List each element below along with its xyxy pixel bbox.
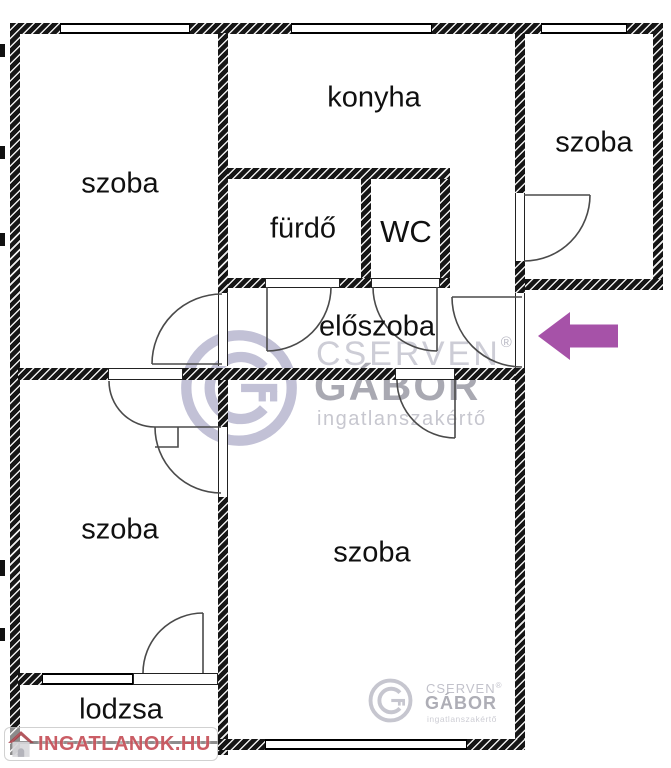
door-opening bbox=[218, 427, 228, 497]
agency-logo-icon bbox=[177, 326, 301, 450]
wall-segment bbox=[455, 368, 515, 380]
agency-name-bottom-small: GÁBOR bbox=[425, 693, 497, 714]
edge-mark bbox=[0, 560, 5, 576]
room-label-hallway: előszoba bbox=[319, 311, 435, 344]
room-label-living: szoba bbox=[333, 537, 410, 570]
wall-segment bbox=[218, 33, 228, 293]
edge-mark bbox=[0, 233, 5, 246]
wall-segment bbox=[10, 23, 20, 755]
wall-segment bbox=[340, 278, 371, 288]
room-label-loggia: lodzsa bbox=[79, 694, 163, 727]
door-opening bbox=[395, 368, 455, 380]
wall-segment bbox=[10, 23, 60, 34]
agency-logo-icon-small bbox=[367, 677, 414, 724]
wall-segment bbox=[653, 23, 663, 290]
door-opening bbox=[515, 193, 525, 261]
wall-segment bbox=[218, 380, 228, 427]
room-label-bathroom: fürdő bbox=[270, 213, 336, 246]
wall-segment bbox=[228, 278, 265, 288]
wall-segment bbox=[515, 368, 525, 750]
room-label-wc: WC bbox=[380, 214, 432, 250]
wall-segment bbox=[190, 23, 291, 34]
portal-watermark: INGATLANOK.HU bbox=[4, 727, 218, 761]
registered-mark-small: ® bbox=[496, 681, 503, 690]
edge-mark bbox=[0, 146, 5, 159]
agency-tagline: ingatlanszakértő bbox=[317, 408, 487, 431]
room-label-kitchen: konyha bbox=[327, 82, 421, 115]
wall-segment bbox=[515, 33, 525, 193]
wall-segment bbox=[218, 497, 228, 755]
door-arc bbox=[524, 195, 590, 261]
agency-tagline-small: ingatlanszakértő bbox=[427, 714, 497, 724]
wall-segment bbox=[440, 278, 450, 288]
door-opening bbox=[133, 673, 218, 685]
door-opening-entrance bbox=[515, 293, 525, 368]
window bbox=[60, 23, 190, 34]
wall-segment bbox=[18, 368, 108, 380]
wall-segment bbox=[18, 673, 42, 685]
wall-segment bbox=[517, 279, 663, 290]
entrance-arrow-icon bbox=[538, 311, 618, 361]
window bbox=[291, 23, 432, 34]
floor-plan: CSERVEN® GÁBOR ingatlanszakértő CSERVEN®… bbox=[0, 0, 671, 768]
door-arc bbox=[109, 381, 155, 427]
door-opening bbox=[108, 368, 183, 380]
room-label-top-right: szoba bbox=[555, 127, 632, 160]
wall-segment bbox=[183, 368, 395, 380]
room-label-bottom-left: szoba bbox=[81, 514, 158, 547]
room-label-top-left: szoba bbox=[81, 168, 158, 201]
edge-mark bbox=[0, 628, 5, 641]
window bbox=[541, 23, 627, 34]
door-opening bbox=[265, 278, 340, 288]
wall-segment bbox=[218, 739, 265, 750]
registered-mark: ® bbox=[501, 334, 512, 351]
house-icon bbox=[7, 730, 35, 758]
window bbox=[42, 673, 133, 685]
door-opening bbox=[371, 278, 440, 288]
wall-segment bbox=[361, 179, 371, 278]
wall-segment bbox=[440, 179, 450, 278]
door-opening bbox=[218, 293, 228, 366]
door-arc bbox=[143, 613, 203, 673]
wall-segment bbox=[515, 261, 525, 293]
edge-mark bbox=[0, 44, 5, 57]
portal-watermark-text: INGATLANOK.HU bbox=[38, 733, 211, 756]
wall-segment bbox=[467, 739, 525, 750]
window bbox=[265, 739, 467, 750]
wall-segment bbox=[228, 168, 450, 179]
